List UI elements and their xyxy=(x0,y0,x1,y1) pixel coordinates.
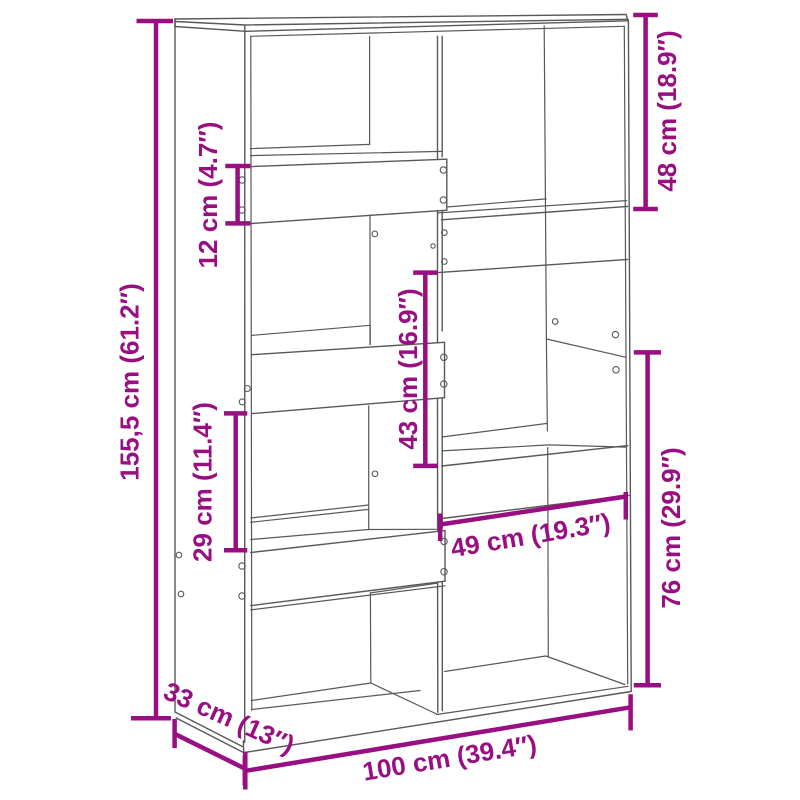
svg-text:48 cm (18.9″): 48 cm (18.9″) xyxy=(652,30,682,191)
svg-text:12 cm (4.7″): 12 cm (4.7″) xyxy=(193,122,223,269)
svg-text:155,5 cm (61.2″): 155,5 cm (61.2″) xyxy=(115,283,145,480)
svg-text:76 cm (29.9″): 76 cm (29.9″) xyxy=(656,447,686,608)
svg-text:43 cm (16.9″): 43 cm (16.9″) xyxy=(393,288,423,449)
svg-text:29 cm (11.4″): 29 cm (11.4″) xyxy=(188,402,218,562)
